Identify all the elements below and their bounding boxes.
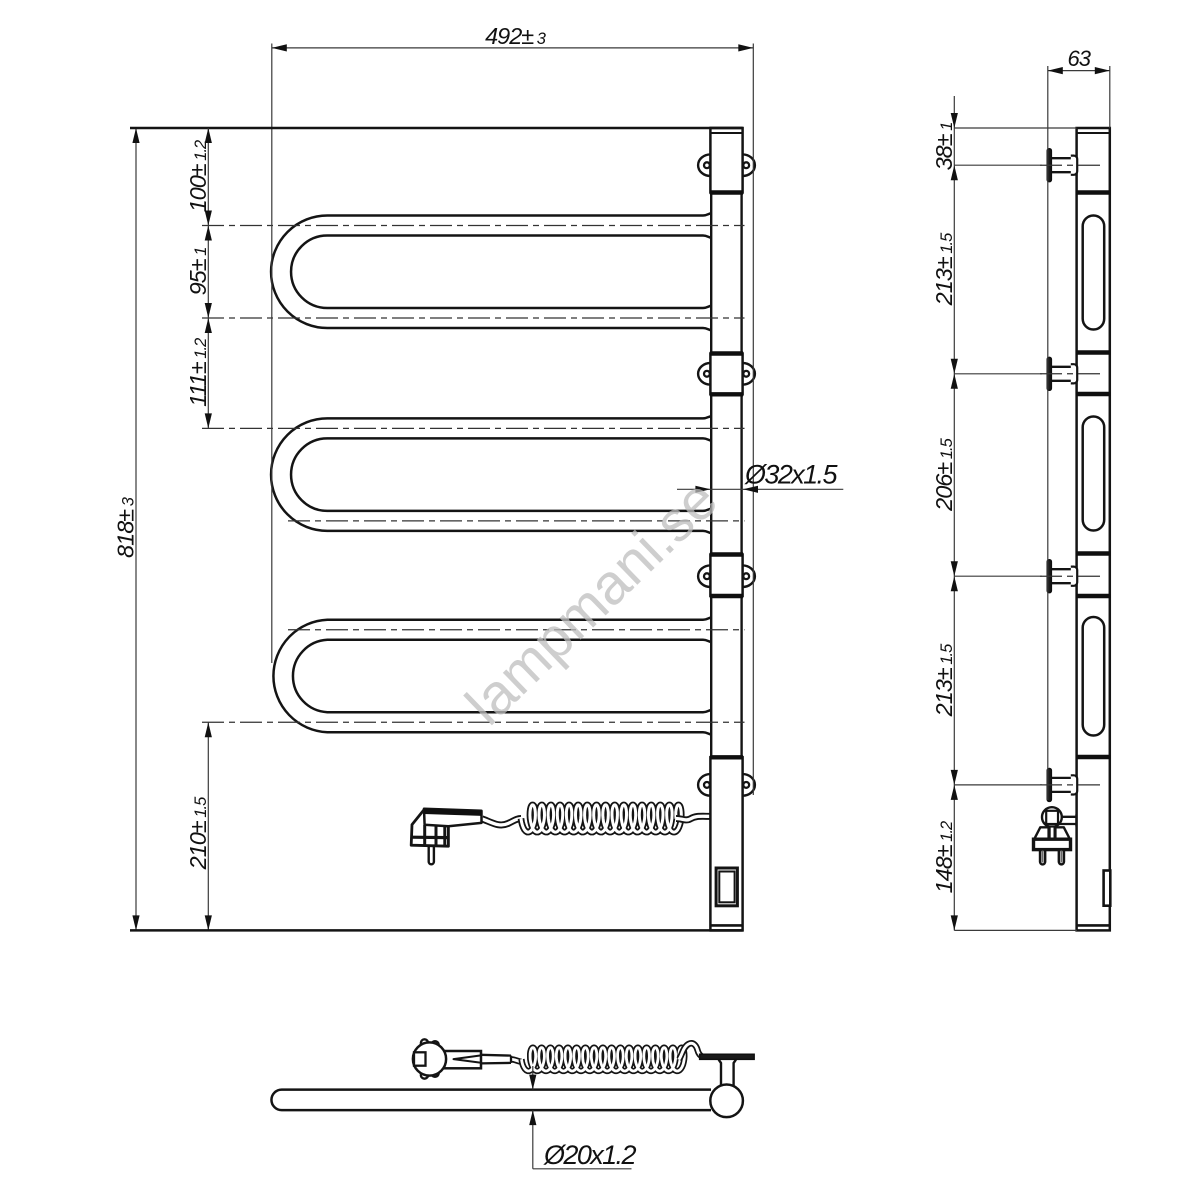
svg-text:Ø32x1.5: Ø32x1.5 <box>744 460 838 490</box>
svg-text:Ø20x1.2: Ø20x1.2 <box>543 1140 636 1170</box>
svg-text:63: 63 <box>1068 46 1092 71</box>
